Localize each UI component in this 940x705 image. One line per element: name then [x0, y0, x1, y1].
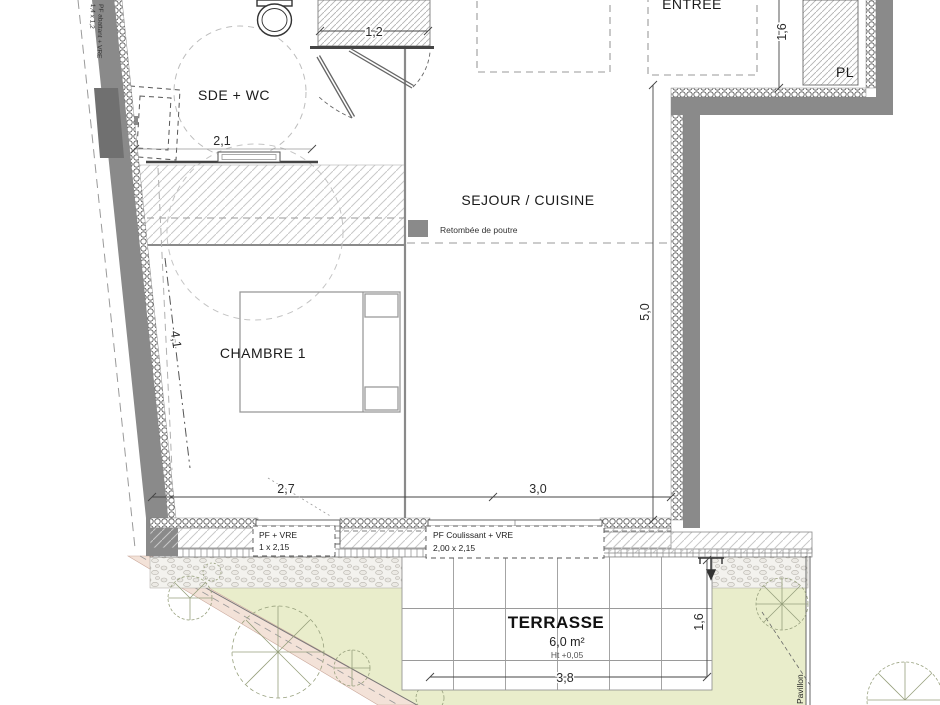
floor-plan: Pavillon TERRASSE 6,0 m² Ht +0,05 3,8 [0, 0, 940, 705]
gravel-strip-right [712, 557, 808, 588]
wall-outer-right [876, 0, 893, 115]
window-sejour-size: 2,00 x 2,15 [433, 543, 475, 553]
terrasse-area: 6,0 m² [549, 635, 584, 649]
sde-label: SDE + WC [198, 87, 270, 103]
dim-entree: 1,6 [775, 23, 789, 40]
wall-low-garden [600, 532, 812, 553]
door-leaf [349, 49, 430, 89]
dim-terrasse-width: 3,8 [556, 671, 573, 685]
dim-bottom-line [148, 493, 675, 501]
door-leaf [317, 56, 355, 119]
dim-sejour-depth: 5,0 [638, 303, 652, 320]
window-sejour-type: PF Coulissant + VRE [433, 530, 513, 540]
window-chambre-type: PF + VRE [259, 530, 297, 540]
wall-top-right-h [671, 97, 893, 115]
terrace: TERRASSE 6,0 m² Ht +0,05 3,8 1,6 [402, 556, 724, 690]
terrasse-height: Ht +0,05 [551, 650, 584, 660]
lawn-right [712, 588, 806, 705]
placard-label: PL [836, 64, 854, 80]
vanity [218, 152, 280, 162]
chambre-label: CHAMBRE 1 [220, 345, 306, 361]
window-chambre-size: 1 x 2,15 [259, 542, 290, 552]
legend: Retombée de poutre [408, 220, 518, 237]
dim-chambre-diag: 4,1 [168, 330, 184, 349]
wall-outer-right-insulation [866, 0, 876, 88]
entry-wall-block [310, 0, 434, 118]
legend-label: Retombée de poutre [440, 225, 518, 235]
dim-terrasse-depth: 1,6 [692, 613, 706, 630]
dim-chambre-width: 2,7 [277, 482, 294, 496]
tree-icon [867, 662, 940, 705]
svg-text:1,4 x 1,2: 1,4 x 1,2 [88, 4, 96, 30]
placard: PL [803, 0, 858, 85]
wall-right-insulation [671, 97, 683, 520]
dim-sde: 2,1 [213, 134, 230, 148]
dim-sejour-depth-line [649, 81, 657, 524]
kitchen-zone-dashed [477, 0, 610, 72]
dim-sejour-width: 3,0 [529, 482, 546, 496]
gravel-strip-left [150, 557, 402, 588]
neighbor-label: Pavillon [795, 674, 805, 704]
terrasse-label: TERRASSE [508, 613, 605, 632]
wall-right [683, 95, 700, 528]
dim-entree-line [775, 0, 783, 92]
beam-drop-zone [135, 165, 405, 245]
toilet-icon [257, 0, 292, 36]
wall-top-insulation [671, 88, 866, 97]
dim-door: 1,2 [365, 25, 382, 39]
legend-swatch [408, 220, 428, 237]
entree-label: ENTREE [662, 0, 722, 12]
dim-chambre-diag-line [165, 258, 190, 468]
lawn-bottom [402, 690, 712, 705]
floor-plan-canvas: Pavillon TERRASSE 6,0 m² Ht +0,05 3,8 [0, 0, 940, 705]
tree-icon [756, 578, 808, 630]
sejour-label: SEJOUR / CUISINE [461, 192, 594, 208]
svg-text:Pavillon: Pavillon [795, 674, 805, 704]
walls [92, 0, 893, 556]
